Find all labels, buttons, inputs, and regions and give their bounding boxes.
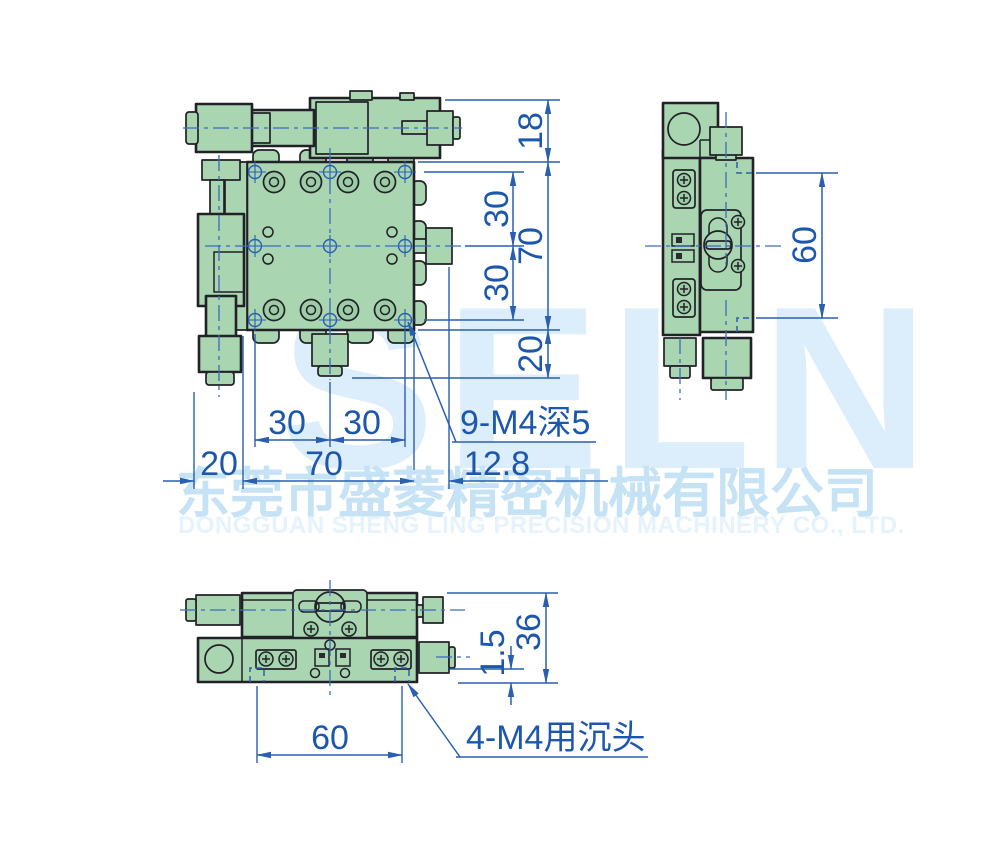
front-barrel-end <box>205 645 233 673</box>
dim-60-front: 60 <box>311 719 349 757</box>
xy-stage-drawing: SELN 东莞市盛菱精密机械有限公司 DONGGUAN SHENG LING P… <box>0 0 1001 853</box>
x-axis-micrometer <box>186 91 460 158</box>
dim-30-upper-right: 30 <box>478 190 516 228</box>
side-clamp-plate <box>701 210 745 290</box>
dim-60-side: 60 <box>786 226 824 264</box>
front-view: 36 1.5 60 4-M4用沉头 <box>180 580 648 763</box>
dim-30-bottom-left: 30 <box>268 404 306 442</box>
dim-1-5: 1.5 <box>474 629 512 676</box>
dim-20-right: 20 <box>512 335 550 373</box>
dim-18: 18 <box>512 112 550 150</box>
dim-36: 36 <box>510 613 548 651</box>
technical-drawing-canvas: SELN 东莞市盛菱精密机械有限公司 DONGGUAN SHENG LING P… <box>0 0 1001 853</box>
dim-30-bottom-right: 30 <box>343 404 381 442</box>
dim-12-8: 12.8 <box>464 445 530 483</box>
dim-70-right: 70 <box>512 227 550 265</box>
note-tapped-holes: 9-M4深5 <box>460 404 590 442</box>
dim-30-lower-right: 30 <box>478 264 516 302</box>
micrometer-barrel-end <box>668 113 700 145</box>
note-counterbores: 4-M4用沉头 <box>466 719 645 757</box>
dim-70-bottom: 70 <box>305 445 343 483</box>
y-micrometer-thimble <box>199 336 241 372</box>
watermark-company-en: DONGGUAN SHENG LING PRECISION MACHINERY … <box>178 512 905 539</box>
dim-20-bottom: 20 <box>200 445 238 483</box>
